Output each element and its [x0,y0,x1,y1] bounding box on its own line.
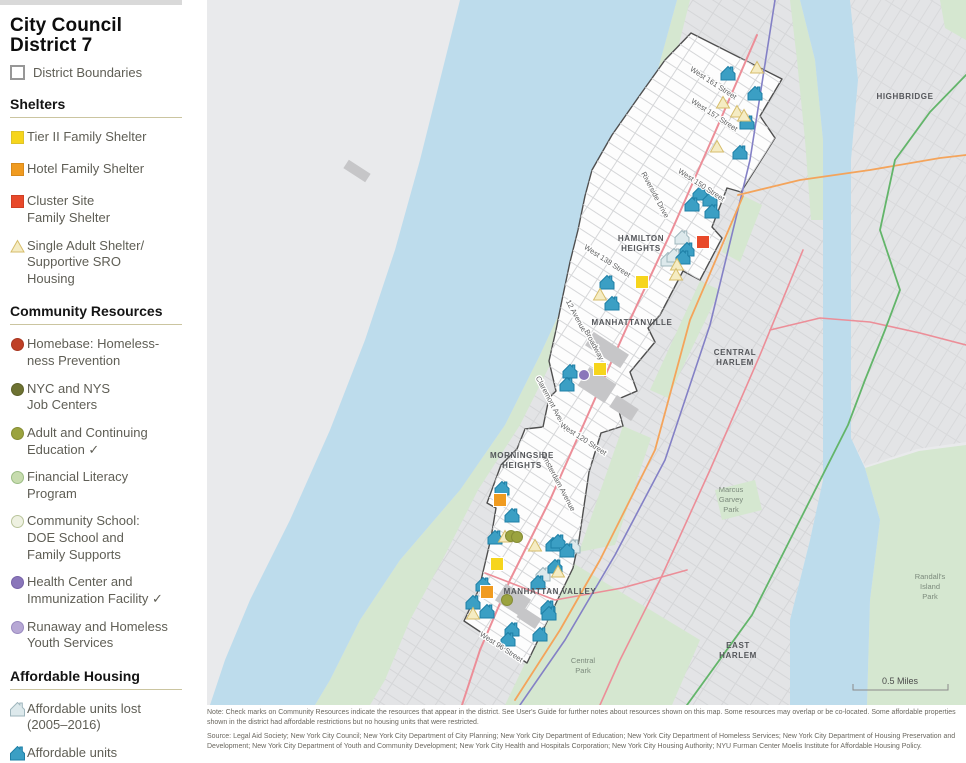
map-notes: Note: Check marks on Community Resources… [207,708,959,757]
legend-item-label: Cluster Site Family Shelter [27,193,110,226]
neighborhood-label: MANHATTANVILLE [592,318,673,327]
legend-item-job-centers: NYC and NYS Job Centers [10,381,182,414]
tier2-family-shelter-icon [10,130,25,145]
hotel-family-shelter-icon [10,162,25,177]
scale-bar-label: 0.5 Miles [882,676,919,686]
adult-education-swatch [10,425,27,446]
title-line1: City Council [10,16,182,36]
runaway-youth-services-swatch [10,619,27,640]
community-school-icon [10,514,25,529]
legend-item-label: Health Center and Immunization Facility … [27,574,163,607]
legend-item-runaway-youth-services: Runaway and Homeless Youth Services [10,619,182,652]
marker-tier2-family-shelter [636,276,649,289]
marker-adult-education [502,595,513,606]
legend-item-label: NYC and NYS Job Centers [27,381,110,414]
single-adult-shelter-sro-swatch [10,238,27,259]
health-center-swatch [10,574,27,595]
legend-item-cluster-site-family-shelter: Cluster Site Family Shelter [10,193,182,226]
legend-item-label: Single Adult Shelter/ Supportive SRO Hou… [27,238,144,288]
single-adult-shelter-sro-icon [10,239,25,254]
legend-item-label: Runaway and Homeless Youth Services [27,619,168,652]
hotel-family-shelter-swatch [10,161,27,182]
source-text: Source: Legal Aid Society; New York City… [207,732,959,751]
affordable-units-could-be-lost-icon [10,746,25,761]
cluster-site-family-shelter-swatch [10,193,27,214]
page-title: City Council District 7 [10,16,182,56]
financial-literacy-swatch [10,469,27,490]
financial-literacy-icon [10,470,25,485]
legend-item-affordable-units-lost: Affordable units lost (2005–2016) [10,701,182,734]
legend-item-adult-education: Adult and Continuing Education ✓ [10,425,182,458]
community-school-swatch [10,513,27,534]
marker-hotel-family-shelter [481,586,494,599]
marker-hotel-family-shelter [494,494,507,507]
job-centers-icon [10,382,25,397]
job-centers-swatch [10,381,27,402]
grid-bronx [850,0,966,466]
legend-item-district-boundaries: District Boundaries [10,65,182,80]
marker-cluster-site-shelter [697,236,710,249]
affordable-units-lost-swatch [10,701,27,722]
district-boundaries-icon [10,65,25,80]
top-accent-bar [0,0,182,5]
homebase-prevention-swatch [10,336,27,357]
legend-sidebar: City Council District 7 District Boundar… [10,16,182,763]
map-canvas: West 161 StreetWest 157 StreetWest 150 S… [207,0,966,705]
note-text: Note: Check marks on Community Resources… [207,708,959,727]
marker-tier2-family-shelter [491,558,504,571]
legend-item-affordable-units-could-be-lost: Affordable units that could be lost (201… [10,745,182,763]
legend-item-label: Financial Literacy Program [27,469,128,502]
legend-item-label: Community School: DOE School and Family … [27,513,140,563]
legend-section-shelters: SheltersTier II Family ShelterHotel Fami… [10,96,182,287]
legend-section-heading: Shelters [10,96,182,118]
legend-item-label: Affordable units lost (2005–2016) [27,701,141,734]
cluster-site-family-shelter-icon [10,194,25,209]
legend-item-single-adult-shelter-sro: Single Adult Shelter/ Supportive SRO Hou… [10,238,182,288]
legend-item-label: Affordable units that could be lost (201… [27,745,125,763]
map: West 161 StreetWest 157 StreetWest 150 S… [207,0,966,705]
legend-section-community-resources: Community ResourcesHomebase: Homeless- n… [10,303,182,651]
district-boundaries-label: District Boundaries [33,65,142,80]
legend-section-affordable-housing: Affordable HousingAffordable units lost … [10,668,182,763]
health-center-icon [10,575,25,590]
neighborhood-label: HAMILTONHEIGHTS [618,234,664,253]
legend-item-label: Tier II Family Shelter [27,129,146,146]
legend-item-health-center: Health Center and Immunization Facility … [10,574,182,607]
legend-item-label: Homebase: Homeless- ness Prevention [27,336,159,369]
legend-item-homebase-prevention: Homebase: Homeless- ness Prevention [10,336,182,369]
affordable-units-could-be-lost-swatch [10,745,27,763]
tier2-family-shelter-swatch [10,129,27,150]
legend-item-tier2-family-shelter: Tier II Family Shelter [10,129,182,150]
marker-health-center [579,370,590,381]
legend-item-label: Hotel Family Shelter [27,161,144,178]
marker-tier2-family-shelter [594,363,607,376]
legend-item-community-school: Community School: DOE School and Family … [10,513,182,563]
neighborhood-label: MANHATTAN VALLEY [504,587,597,596]
legend-section-heading: Community Resources [10,303,182,325]
legend-section-heading: Affordable Housing [10,668,182,690]
legend-item-financial-literacy: Financial Literacy Program [10,469,182,502]
neighborhood-label: CENTRALHARLEM [714,348,756,367]
legend-sections: SheltersTier II Family ShelterHotel Fami… [10,96,182,763]
legend-item-label: Adult and Continuing Education ✓ [27,425,148,458]
title-line2: District 7 [10,36,182,56]
homebase-prevention-icon [10,337,25,352]
page: City Council District 7 District Boundar… [0,0,966,763]
runaway-youth-services-icon [10,620,25,635]
affordable-units-lost-icon [10,702,25,717]
adult-education-icon [10,426,25,441]
neighborhood-label: HIGHBRIDGE [876,92,933,101]
legend-item-hotel-family-shelter: Hotel Family Shelter [10,161,182,182]
marker-adult-education [512,532,523,543]
